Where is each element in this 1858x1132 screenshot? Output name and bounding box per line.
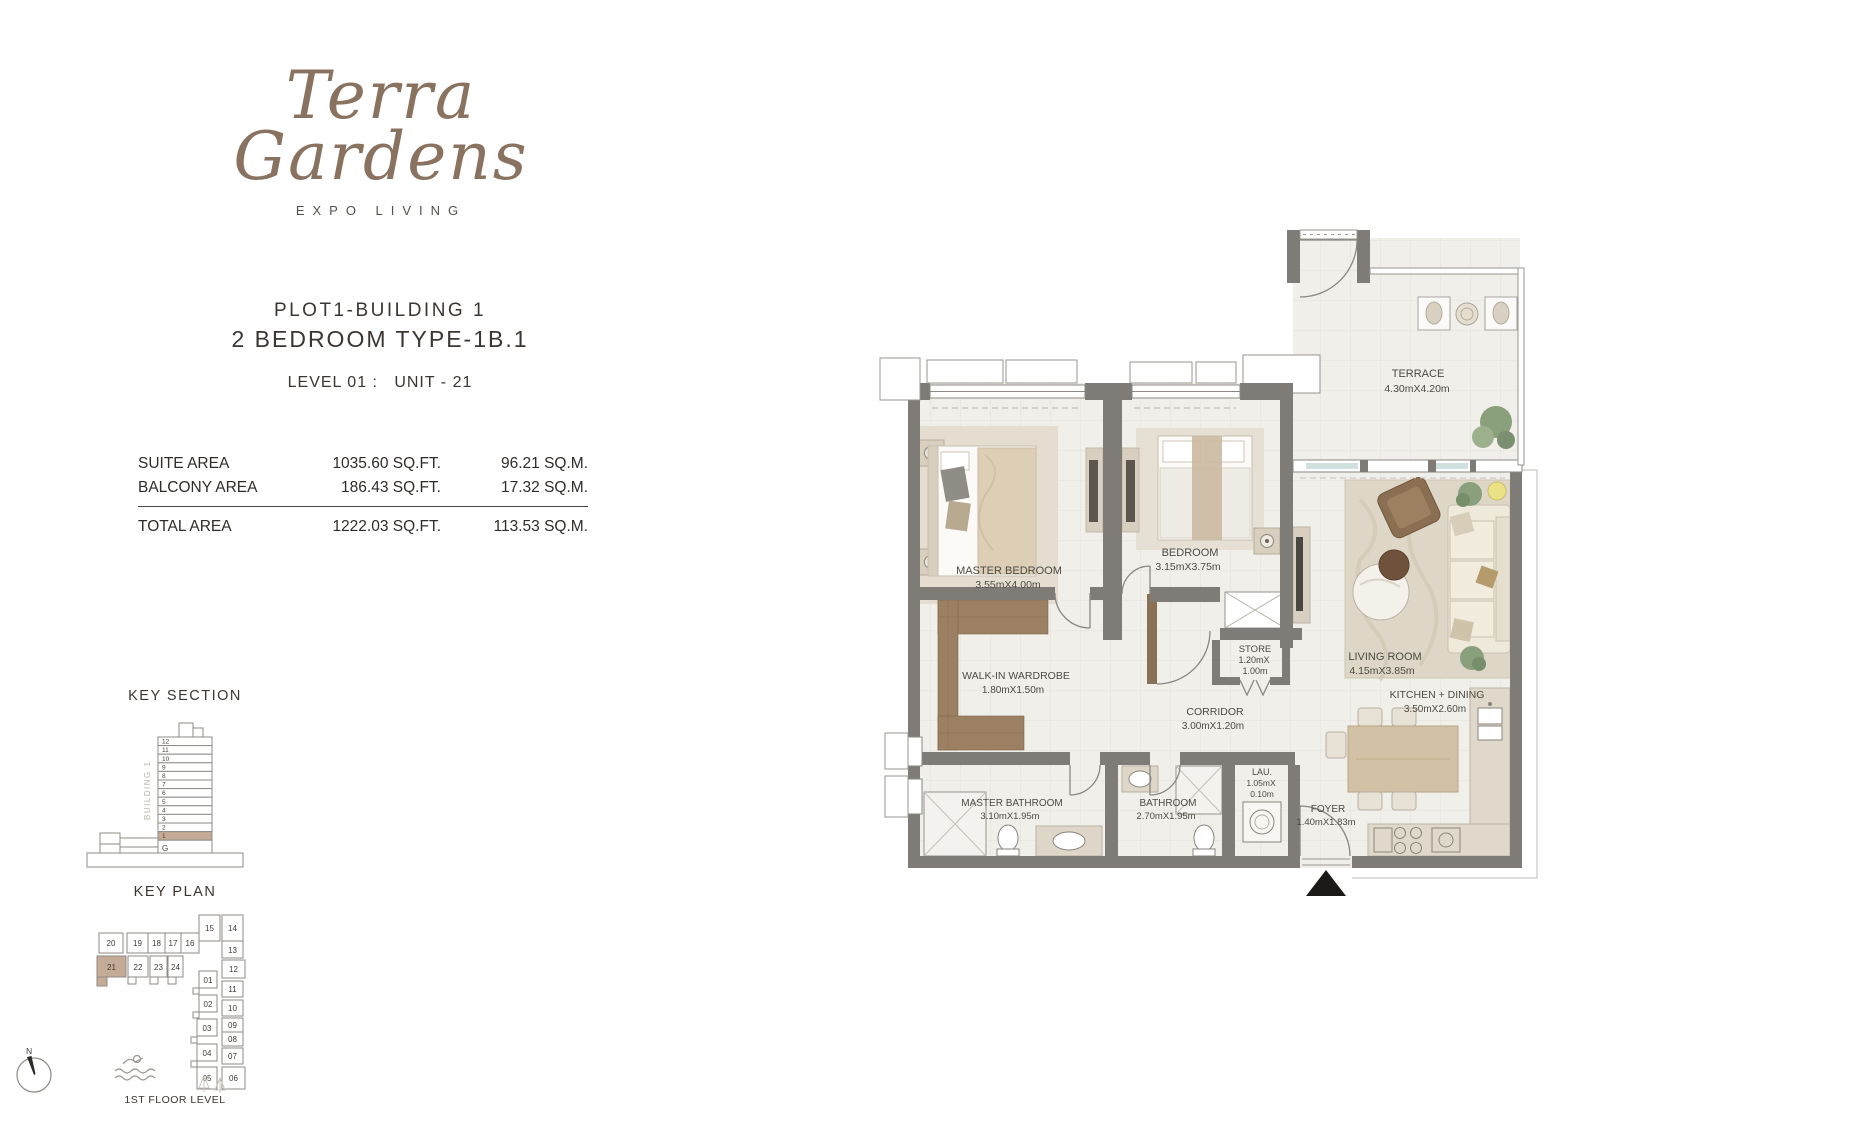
area-table: SUITE AREA 1035.60 SQ.FT. 96.21 SQ.M. BA… — [138, 452, 588, 539]
toilet — [1194, 825, 1214, 851]
floor-plan: MASTER BEDROOM 3.55mX4.00m BEDROOM 3.15m… — [860, 190, 1580, 910]
room-label: STORE — [1239, 644, 1272, 655]
window-sill — [885, 733, 908, 769]
unit-number: 03 — [203, 1024, 212, 1033]
key-plan-diagram: 20 19 18 17 16 15 14 21 22 23 24 01 02 0… — [85, 908, 260, 1093]
basin — [1129, 771, 1151, 787]
roof-structure — [193, 728, 203, 737]
room-dims: 3.15mX3.75m — [1155, 561, 1221, 573]
floor-label: 6 — [162, 790, 166, 797]
room-label: FOYER — [1311, 804, 1345, 815]
basin — [1053, 832, 1085, 850]
floor-label: 12 — [162, 739, 170, 746]
highlighted-floor — [158, 832, 212, 841]
table-divider — [138, 506, 588, 507]
room-dims: 3.00mX1.20m — [1182, 721, 1244, 732]
room-dims: 3.10mX1.95m — [980, 811, 1039, 822]
wardrobe-dark-slab — [1089, 460, 1098, 522]
area-row-sqm: 17.32 SQ.M. — [441, 479, 588, 497]
tv-console — [1293, 527, 1310, 623]
unit-number: 13 — [228, 946, 237, 955]
balcony-tab — [128, 977, 136, 984]
sofa — [1448, 505, 1510, 653]
unit-21-tab — [97, 977, 107, 986]
master-bed — [918, 440, 1036, 576]
unit-number: 01 — [204, 976, 213, 985]
unit-number: 17 — [169, 939, 178, 948]
room-dims: 3.50mX2.60m — [1404, 704, 1466, 715]
room-dims: 3.55mX4.00m — [975, 579, 1041, 591]
brand-logo: Terra Gardens EXPO LIVING — [216, 66, 546, 218]
room-label: MASTER BATHROOM — [961, 798, 1062, 809]
total-label: TOTAL AREA — [138, 518, 313, 536]
podium — [87, 853, 243, 867]
entry-arrow — [1306, 870, 1346, 896]
floor-label: 2 — [162, 825, 166, 832]
balcony-tab — [193, 988, 199, 994]
unit-number: 06 — [229, 1074, 238, 1083]
unit-number: 15 — [205, 924, 214, 933]
unit-number: 07 — [228, 1052, 237, 1061]
room-dims: 1.05mX — [1246, 778, 1276, 788]
unit-number: 16 — [186, 939, 195, 948]
wardrobe-dark-slab — [1126, 460, 1135, 522]
area-row-sqft: 186.43 SQ.FT. — [313, 479, 441, 497]
key-section-diagram: 12 11 10 9 8 7 6 5 4 3 2 1 G BUILDING 1 — [70, 710, 260, 880]
floor-label: 11 — [162, 747, 169, 754]
unit-number: 24 — [171, 963, 180, 972]
room-label: MASTER BEDROOM — [956, 565, 1062, 577]
floor-label: 3 — [162, 816, 166, 823]
unit-number: 20 — [107, 939, 116, 948]
roof-structure — [179, 723, 193, 737]
window-sill — [927, 360, 1003, 383]
unit-number: 08 — [228, 1035, 237, 1044]
unit-number: 19 — [133, 939, 142, 948]
balcony-tab — [168, 977, 176, 984]
room-label: LAU. — [1252, 767, 1272, 777]
side-table — [1379, 550, 1409, 580]
window-sill — [1196, 362, 1236, 383]
sink — [1478, 708, 1502, 724]
laundry-machine — [1243, 802, 1281, 842]
glass — [1306, 463, 1358, 469]
floor-label: 4 — [162, 807, 166, 814]
table-total-row: TOTAL AREA 1222.03 SQ.FT. 113.53 SQ.M. — [138, 515, 588, 539]
room-label: WALK-IN WARDROBE — [962, 670, 1070, 682]
room-dims: 1.40mX1.83m — [1296, 817, 1355, 828]
area-row-sqft: 1035.60 SQ.FT. — [313, 455, 441, 473]
floor-label-ground: G — [162, 844, 168, 853]
balcony-tab — [191, 1061, 197, 1067]
toilet — [998, 825, 1018, 851]
room-label: TERRACE — [1392, 368, 1445, 380]
brochure-page: Terra Gardens EXPO LIVING PLOT1-BUILDING… — [0, 0, 1858, 1132]
room-dims: 4.15mX3.85m — [1349, 665, 1415, 677]
brand-tagline: EXPO LIVING — [216, 203, 546, 218]
pool-swimmer-icon — [115, 1056, 155, 1081]
glass — [1434, 463, 1468, 469]
unit-number-highlighted: 21 — [107, 963, 116, 972]
compass-north-label: N — [26, 1046, 32, 1056]
unit-number: 11 — [228, 985, 237, 994]
dining-chair — [1392, 792, 1416, 810]
table-row: BALCONY AREA 186.43 SQ.FT. 17.32 SQ.M. — [138, 476, 588, 500]
dining-chair — [1358, 708, 1382, 726]
unit-number: 14 — [228, 924, 237, 933]
floor-label: 10 — [162, 756, 170, 763]
area-row-label: BALCONY AREA — [138, 479, 313, 497]
key-plan-title: KEY PLAN — [90, 884, 260, 900]
room-dims: 0.10m — [1250, 789, 1274, 799]
floor-label: 5 — [162, 799, 166, 806]
room-label: LIVING ROOM — [1348, 651, 1421, 663]
annex-block — [100, 833, 120, 844]
unit-number: 18 — [152, 939, 161, 948]
floor-label: 9 — [162, 764, 166, 771]
room-dims: 1.80mX1.50m — [982, 685, 1044, 696]
bedroom-closet — [1225, 592, 1285, 628]
north-compass-icon: N — [8, 1042, 68, 1108]
area-row-label: SUITE AREA — [138, 455, 313, 473]
window-sill — [885, 776, 908, 817]
dining-chair — [1326, 732, 1346, 758]
area-row-sqm: 96.21 SQ.M. — [441, 455, 588, 473]
dining-chair — [1358, 792, 1382, 810]
room-label: KITCHEN + DINING — [1390, 689, 1485, 701]
open-door-leaf — [1147, 594, 1157, 684]
floor-label: 8 — [162, 773, 166, 780]
balcony-tab — [191, 1037, 197, 1043]
room-label: BEDROOM — [1162, 547, 1219, 559]
unit-type-title: 2 BEDROOM TYPE-1B.1 — [140, 326, 620, 353]
compass-needle — [27, 1056, 36, 1075]
table-row: SUITE AREA 1035.60 SQ.FT. 96.21 SQ.M. — [138, 452, 588, 476]
room-dims: 4.30mX4.20m — [1384, 383, 1450, 395]
window-sill — [1130, 362, 1192, 383]
window-sill — [1006, 360, 1077, 383]
key-section-title: KEY SECTION — [90, 688, 280, 704]
terrace-table — [1456, 303, 1478, 325]
room-label: BATHROOM — [1139, 798, 1196, 809]
terrace-chair — [1485, 297, 1517, 330]
room-dims: 2.70mX1.95m — [1136, 811, 1195, 822]
floor-lamp — [1488, 482, 1506, 500]
brand-name-line2: Gardens — [216, 127, 546, 188]
room-dims: 1.00m — [1242, 666, 1267, 676]
room-dims: 1.20mX — [1238, 655, 1269, 665]
balcony-tab — [150, 977, 158, 984]
unit-number: 23 — [154, 963, 163, 972]
building-vertical-label: BUILDING 1 — [143, 761, 152, 820]
corner-shaft — [880, 358, 920, 400]
annex-block — [100, 844, 120, 853]
floor-label: 7 — [162, 782, 166, 789]
terrace-chair — [1418, 297, 1450, 330]
unit-number: 09 — [228, 1021, 237, 1030]
total-sqft: 1222.03 SQ.FT. — [313, 518, 441, 536]
floor-level-caption: 1ST FLOOR LEVEL — [100, 1094, 250, 1106]
level-unit-line: LEVEL 01 : UNIT - 21 — [160, 374, 600, 392]
room-label: CORRIDOR — [1186, 706, 1244, 718]
balcony-tab — [193, 1012, 199, 1018]
unit-number: 10 — [228, 1004, 237, 1013]
plot-building-title: PLOT1-BUILDING 1 — [160, 300, 600, 322]
unit-number: 22 — [134, 963, 143, 972]
unit-number: 12 — [229, 965, 238, 974]
unit-number: 04 — [203, 1049, 212, 1058]
total-sqm: 113.53 SQ.M. — [441, 518, 588, 536]
floor-label-highlighted: 1 — [162, 833, 166, 840]
unit-number: 02 — [204, 1000, 213, 1009]
